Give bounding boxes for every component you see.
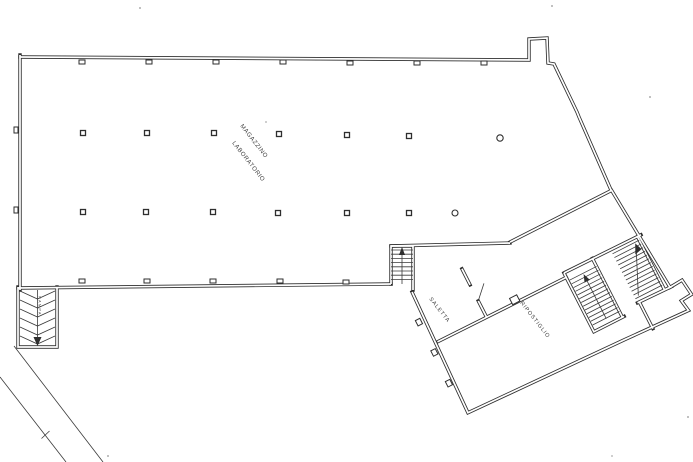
pilaster — [415, 318, 422, 326]
scan-noise — [107, 5, 689, 457]
room-label-saletta: SALETTA — [427, 297, 450, 325]
main-hall-top-right-wall — [20, 38, 611, 190]
arrowheads — [34, 242, 644, 346]
left-stair-arrowhead — [581, 273, 590, 283]
labels-layer: MAGAZZINO LABORATORIO SALETTA RIPOSTIGLI… — [38, 124, 551, 340]
details-layer — [0, 212, 664, 462]
pilasters-layer — [14, 60, 487, 284]
boundary-line-light — [0, 377, 66, 462]
saletta-partition — [462, 269, 487, 317]
floor-plan-drawing: MAGAZZINO LABORATORIO SALETTA RIPOSTIGLI… — [0, 0, 693, 462]
ramp-arrowhead — [34, 337, 42, 346]
columns-layer — [81, 131, 504, 217]
walls-layer — [18, 38, 693, 421]
door-leaf — [472, 283, 489, 300]
boundary-line-dark — [14, 346, 103, 462]
room-label-ripostiglio: RIPOSTIGLIO — [518, 301, 550, 340]
wing-details — [414, 212, 665, 397]
junction-stair-arrowhead — [399, 247, 405, 255]
ramp-label: RAMPA — [38, 296, 42, 316]
floor-plan: MAGAZZINO LABORATORIO SALETTA RIPOSTIGLI… — [0, 0, 693, 462]
